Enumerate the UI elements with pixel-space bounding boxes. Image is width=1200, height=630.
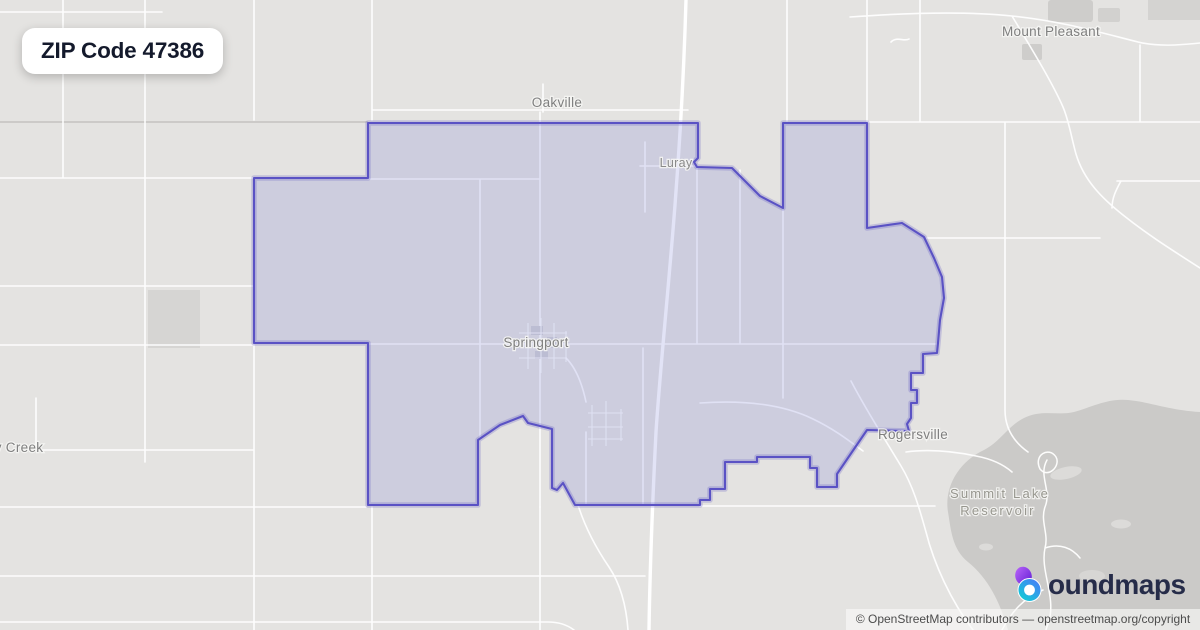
map-canvas: Mount Pleasant Oakville Luray Springport…	[0, 0, 1200, 630]
label-summit-lake-line2: Reservoir	[960, 503, 1035, 518]
boundmaps-logo: oundmaps	[1013, 565, 1186, 605]
label-rogersville: Rogersville	[878, 427, 948, 442]
label-oakville: Oakville	[532, 95, 582, 110]
label-springport: Springport	[503, 335, 568, 350]
label-mount-pleasant: Mount Pleasant	[1002, 24, 1100, 39]
label-summit-lake-line1: Summit Lake	[950, 486, 1050, 501]
zip-code-badge: ZIP Code 47386	[22, 28, 223, 74]
attribution-text: © OpenStreetMap contributors — openstree…	[856, 612, 1190, 626]
map-share-card: Mount Pleasant Oakville Luray Springport…	[0, 0, 1200, 630]
zip-code-badge-label: ZIP Code 47386	[41, 38, 204, 63]
label-luray: Luray	[660, 156, 693, 170]
attribution-bar: © OpenStreetMap contributors — openstree…	[846, 609, 1200, 630]
boundmaps-logo-text: oundmaps	[1048, 565, 1186, 605]
boundmaps-logo-mark	[1013, 565, 1047, 605]
label-creek-partial: y Creek	[0, 440, 43, 455]
